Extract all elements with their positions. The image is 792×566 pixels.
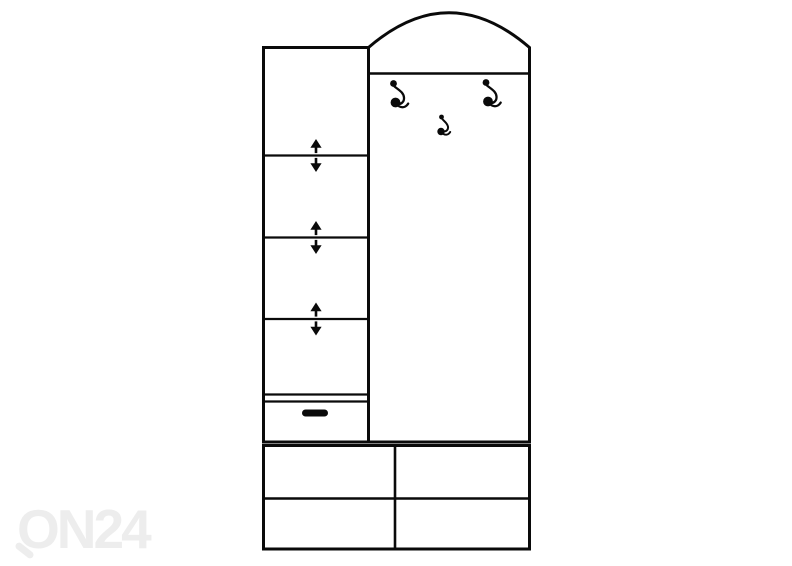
furniture-line-drawing [0, 0, 792, 566]
coat-hook-icon [483, 79, 501, 106]
coat-hook-icon [390, 80, 408, 107]
product-image: ON24 [0, 0, 792, 566]
coat-hook-small-icon [437, 115, 450, 136]
coat-panel [369, 13, 530, 442]
drawer-handle [302, 410, 328, 417]
bottom-drawer-unit [264, 446, 530, 550]
bottom-unit-outline [264, 446, 530, 550]
left-cabinet [264, 48, 369, 443]
cabinet-drawer [265, 402, 367, 417]
coat-panel-outline [369, 13, 530, 442]
